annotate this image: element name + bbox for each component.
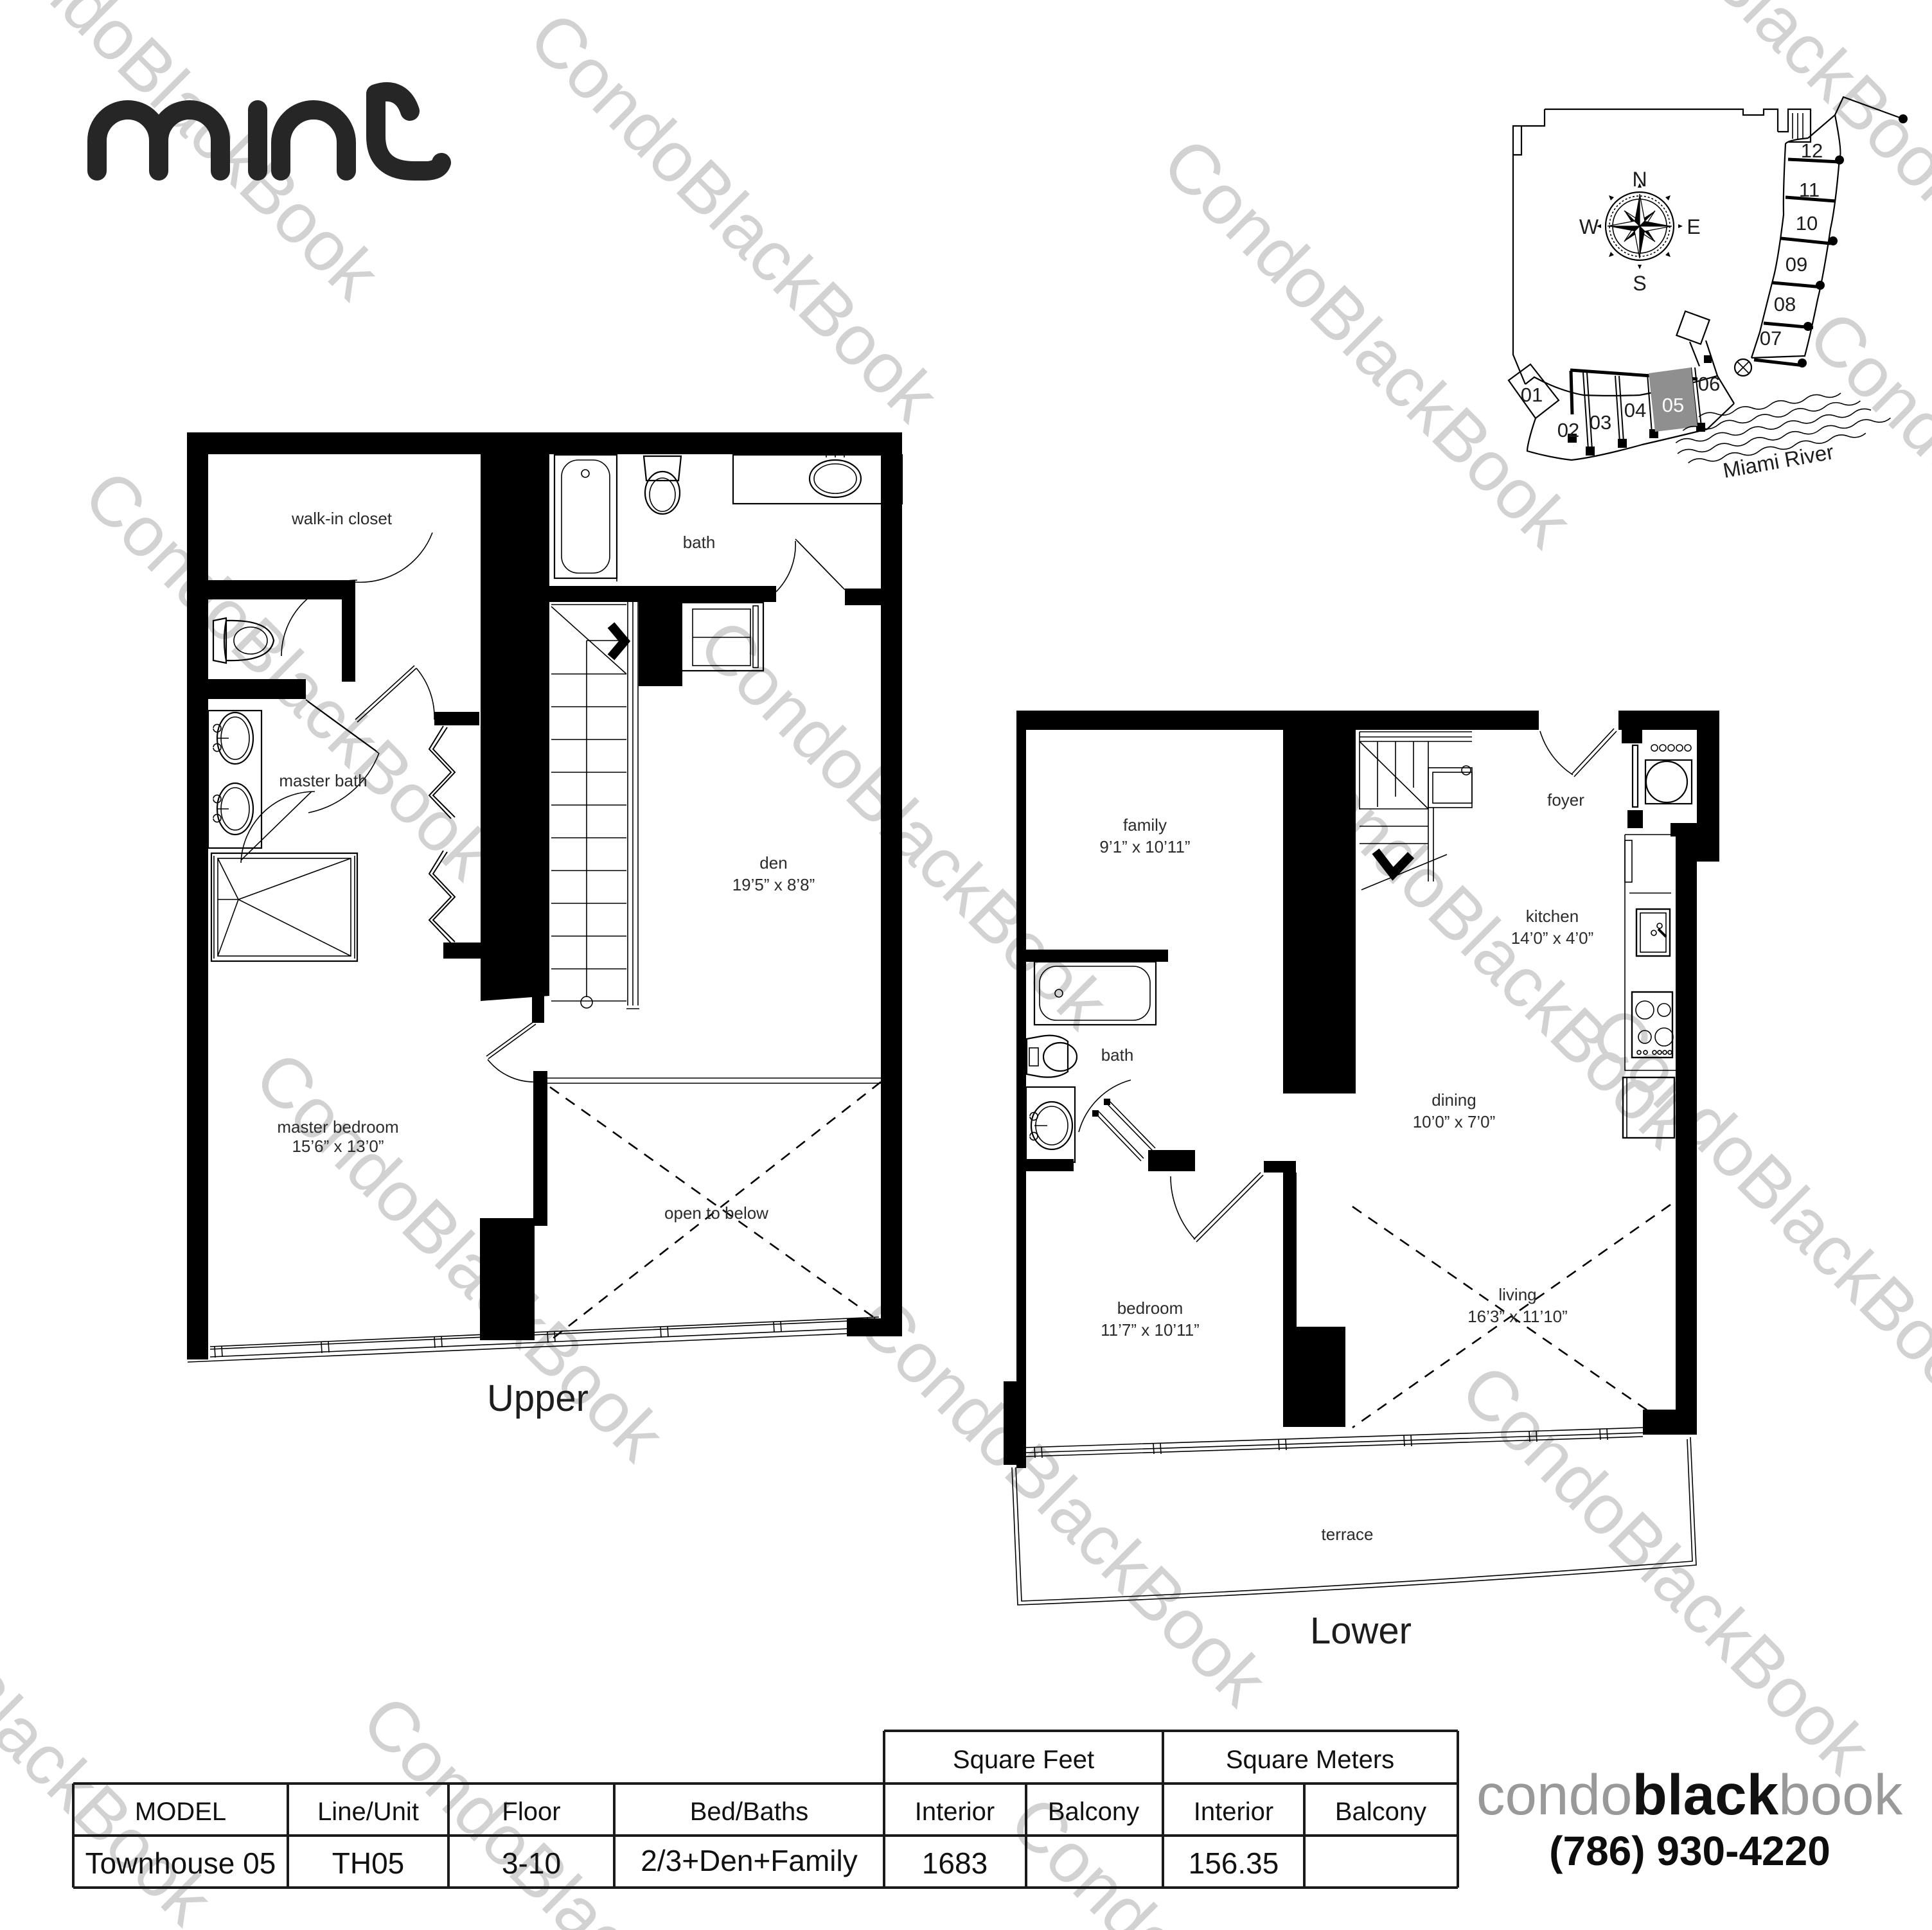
svg-text:07: 07 bbox=[1760, 327, 1782, 350]
svg-text:01: 01 bbox=[1521, 384, 1543, 406]
svg-text:bath: bath bbox=[683, 533, 716, 552]
svg-text:3-10: 3-10 bbox=[502, 1846, 561, 1880]
svg-text:03: 03 bbox=[1590, 411, 1611, 434]
svg-text:Line/Unit: Line/Unit bbox=[317, 1798, 419, 1826]
svg-text:living: living bbox=[1498, 1285, 1536, 1304]
svg-text:09: 09 bbox=[1786, 253, 1807, 276]
svg-text:Upper: Upper bbox=[487, 1377, 589, 1419]
svg-text:9’1” x 10’11”: 9’1” x 10’11” bbox=[1099, 837, 1190, 856]
svg-text:Balcony: Balcony bbox=[1048, 1798, 1139, 1826]
svg-text:12: 12 bbox=[1801, 139, 1823, 162]
svg-text:15’6” x 13’0”: 15’6” x 13’0” bbox=[292, 1137, 384, 1156]
svg-text:10’0” x 7’0”: 10’0” x 7’0” bbox=[1413, 1112, 1496, 1131]
svg-text:E: E bbox=[1687, 215, 1700, 238]
svg-text:Interior: Interior bbox=[915, 1798, 995, 1826]
svg-text:05: 05 bbox=[1662, 394, 1684, 416]
svg-text:N: N bbox=[1632, 168, 1647, 191]
svg-text:den: den bbox=[759, 853, 787, 872]
svg-text:Interior: Interior bbox=[1194, 1798, 1274, 1826]
svg-text:04: 04 bbox=[1624, 399, 1646, 421]
svg-text:TH05: TH05 bbox=[332, 1846, 404, 1880]
svg-text:156.35: 156.35 bbox=[1189, 1846, 1279, 1880]
svg-text:walk-in closet: walk-in closet bbox=[291, 509, 393, 528]
svg-text:open to below: open to below bbox=[664, 1203, 768, 1223]
svg-text:(786) 930-4220: (786) 930-4220 bbox=[1549, 1828, 1830, 1874]
svg-text:bedroom: bedroom bbox=[1117, 1298, 1183, 1318]
svg-text:Townhouse 05: Townhouse 05 bbox=[85, 1846, 276, 1880]
svg-text:16’3” x 11’10”: 16’3” x 11’10” bbox=[1467, 1307, 1568, 1326]
svg-text:Bed/Baths: Bed/Baths bbox=[690, 1798, 809, 1826]
svg-text:08: 08 bbox=[1774, 293, 1796, 315]
svg-text:10: 10 bbox=[1796, 212, 1818, 235]
svg-text:MODEL: MODEL bbox=[135, 1798, 226, 1826]
svg-text:terrace: terrace bbox=[1322, 1525, 1374, 1544]
svg-text:S: S bbox=[1633, 272, 1646, 295]
svg-text:family: family bbox=[1123, 815, 1167, 835]
svg-text:foyer: foyer bbox=[1547, 790, 1584, 810]
svg-text:condoblackbook: condoblackbook bbox=[1476, 1762, 1903, 1827]
svg-text:master bedroom: master bedroom bbox=[277, 1117, 398, 1137]
svg-text:bath: bath bbox=[1101, 1045, 1134, 1065]
svg-text:19’5” x 8’8”: 19’5” x 8’8” bbox=[732, 875, 815, 894]
svg-text:06: 06 bbox=[1698, 373, 1720, 395]
svg-text:Square Meters: Square Meters bbox=[1226, 1746, 1394, 1774]
svg-text:Floor: Floor bbox=[502, 1798, 560, 1826]
svg-text:kitchen: kitchen bbox=[1526, 907, 1579, 926]
svg-text:11’7” x 10’11”: 11’7” x 10’11” bbox=[1101, 1320, 1200, 1340]
svg-text:1683: 1683 bbox=[922, 1846, 988, 1880]
svg-text:2/3+Den+Family: 2/3+Den+Family bbox=[641, 1844, 858, 1877]
svg-text:14’0” x 4’0”: 14’0” x 4’0” bbox=[1511, 928, 1594, 948]
svg-text:master bath: master bath bbox=[279, 771, 367, 790]
svg-text:Balcony: Balcony bbox=[1335, 1798, 1426, 1826]
svg-text:W: W bbox=[1579, 215, 1599, 238]
svg-text:Lower: Lower bbox=[1310, 1610, 1412, 1652]
svg-text:11: 11 bbox=[1799, 179, 1820, 201]
svg-text:dining: dining bbox=[1431, 1090, 1476, 1110]
svg-text:02: 02 bbox=[1557, 419, 1579, 441]
svg-text:Square Feet: Square Feet bbox=[953, 1746, 1094, 1774]
